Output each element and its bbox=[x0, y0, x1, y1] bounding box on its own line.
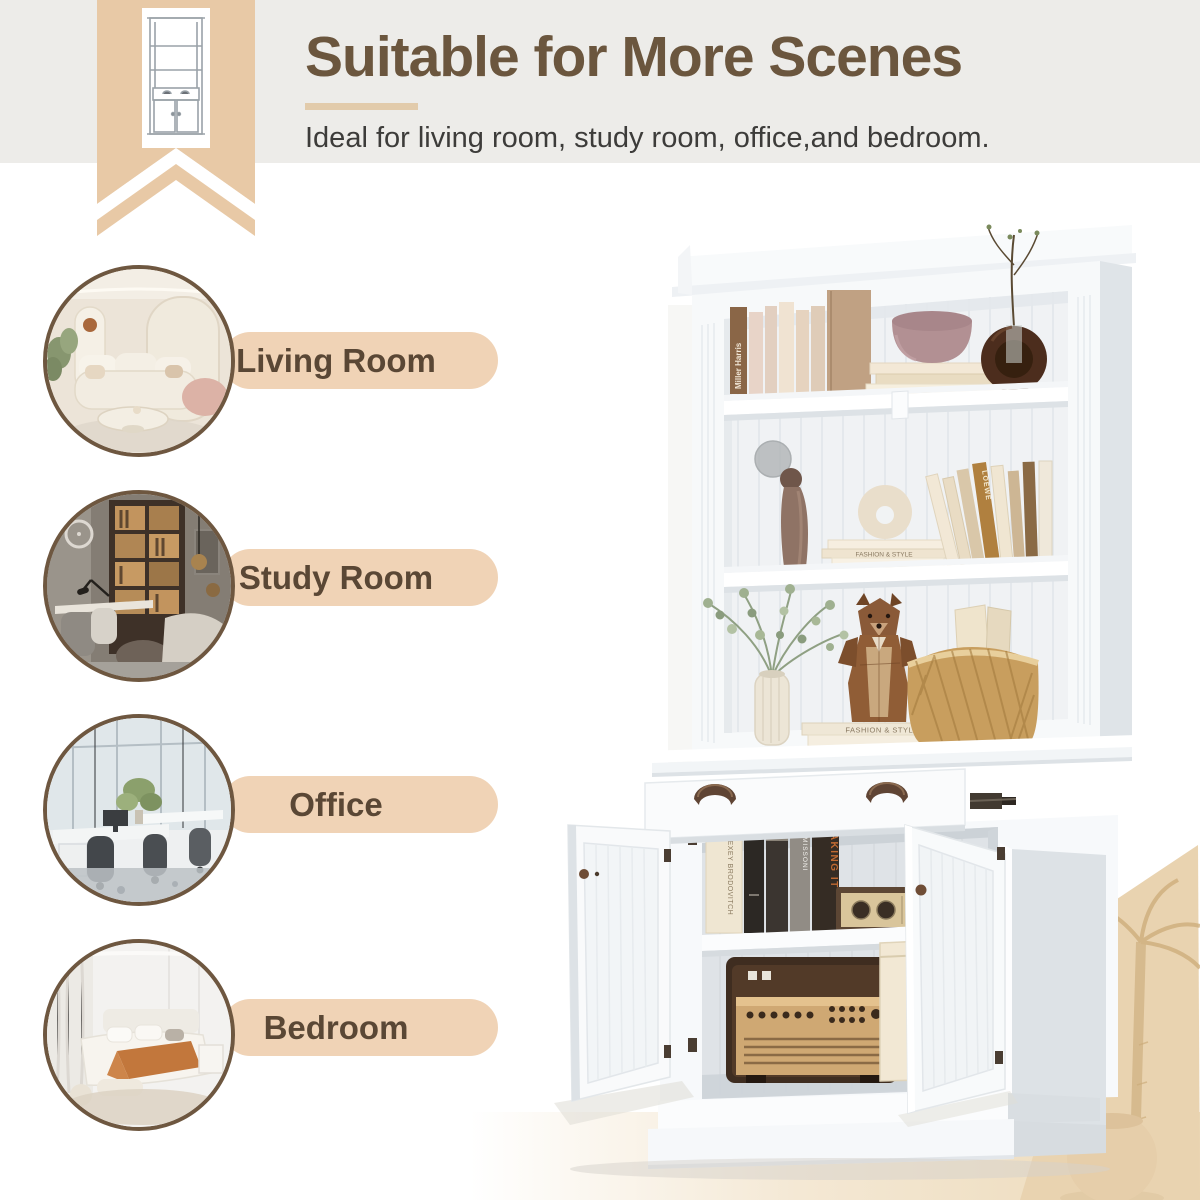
plinth-base bbox=[648, 1091, 1106, 1169]
scene-label-text: Study Room bbox=[239, 559, 433, 597]
page-subtitle: Ideal for living room, study room, offic… bbox=[305, 122, 990, 155]
page-title: Suitable for More Scenes bbox=[305, 26, 990, 89]
scene-label-office: Office bbox=[222, 776, 498, 833]
floor-shadow bbox=[570, 1158, 1110, 1180]
left-door bbox=[568, 825, 671, 1101]
scene-label-text: Living Room bbox=[236, 342, 436, 380]
scene-label-living-room: Living Room bbox=[222, 332, 498, 389]
title-underline bbox=[305, 103, 418, 110]
page: Suitable for More Scenes Ideal for livin… bbox=[0, 0, 1200, 1200]
retro-boombox bbox=[726, 957, 898, 1083]
drawer-slide-hardware bbox=[970, 793, 1016, 809]
header-text: Suitable for More Scenes Ideal for livin… bbox=[305, 26, 990, 155]
book-spine-text: FASHION & STYLE bbox=[855, 552, 913, 559]
scene-photo-office bbox=[43, 714, 235, 906]
hutch-side-panel bbox=[1100, 261, 1132, 743]
scene-photo-study-room bbox=[43, 490, 235, 682]
scene-label-study-room: Study Room bbox=[222, 549, 498, 606]
product-ribbon bbox=[97, 0, 255, 236]
product-photo: Miller Harris bbox=[540, 195, 1160, 1185]
left-door-knob bbox=[579, 869, 589, 879]
book-spine-text: MISSONI bbox=[801, 837, 808, 871]
scene-label-text: Office bbox=[289, 786, 383, 824]
scene-photo-bedroom bbox=[43, 939, 235, 1131]
scene-photo-living-room bbox=[43, 265, 235, 457]
right-door bbox=[905, 825, 1005, 1113]
book-spine-text: Miller Harris bbox=[734, 342, 743, 389]
scene-label-bedroom: Bedroom bbox=[222, 999, 498, 1056]
book-spine-text: ALEXEY BRODOVITCH bbox=[726, 831, 733, 915]
book-spine-text: FASHION & STYLE bbox=[845, 726, 918, 735]
scene-label-text: Bedroom bbox=[264, 1009, 409, 1047]
right-door-knob bbox=[916, 885, 927, 896]
